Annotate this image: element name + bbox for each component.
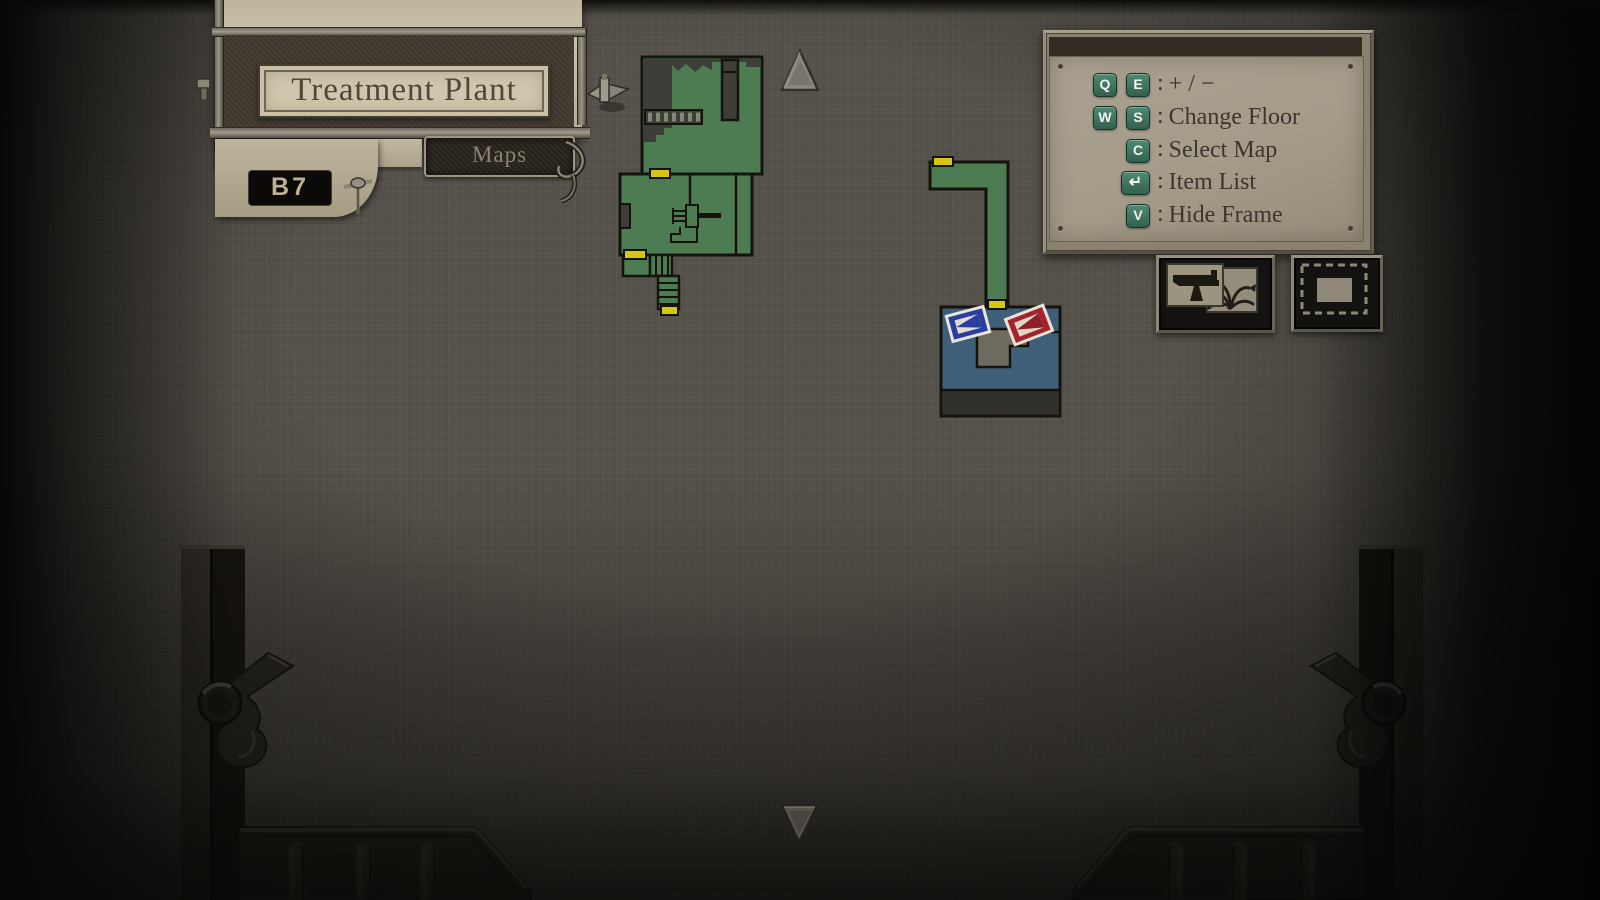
legend-separator: : xyxy=(1157,70,1164,97)
map-frame-toggle[interactable] xyxy=(1291,255,1383,332)
legend-row-zoom: QE : + / − xyxy=(1058,71,1358,98)
frame-icon xyxy=(1302,265,1366,313)
legend-action-zoom: + / − xyxy=(1169,71,1215,98)
legend-separator: : xyxy=(1157,103,1164,130)
key-enter: ↵ xyxy=(1121,171,1150,195)
legend-separator: : xyxy=(1157,168,1164,195)
stairwell-down xyxy=(658,276,679,309)
legend-action-change-floor: Change Floor xyxy=(1169,104,1300,131)
door-marker xyxy=(988,300,1006,309)
staircase xyxy=(645,110,702,124)
legend-row-item-list: ↵ : Item List xyxy=(1058,169,1358,196)
key-w: W xyxy=(1093,106,1117,130)
map-screen: Treatment Plant B7 Maps xyxy=(0,0,1600,900)
floor-down-arrow[interactable] xyxy=(782,806,817,842)
legend-separator: : xyxy=(1157,136,1164,163)
legend-row-change-floor: WS : Change Floor xyxy=(1058,104,1358,131)
map-canvas[interactable] xyxy=(620,57,1060,416)
legend-separator: : xyxy=(1157,201,1164,228)
door-marker xyxy=(661,306,678,315)
maps-tab-hook xyxy=(558,142,582,201)
map-sector-east xyxy=(930,157,1060,416)
legend-action-item-list: Item List xyxy=(1169,169,1256,196)
shaft xyxy=(722,60,738,120)
screw-icon xyxy=(1058,64,1063,69)
floor-up-arrow[interactable] xyxy=(782,51,818,90)
legend-action-select-map: Select Map xyxy=(1169,137,1278,164)
wing-nut-clip xyxy=(588,74,628,112)
door-marker xyxy=(650,169,670,178)
screw-icon xyxy=(1348,64,1353,69)
handgun-icon xyxy=(1167,264,1223,306)
key-q: Q xyxy=(1093,73,1117,97)
sign-bracket-left xyxy=(197,79,210,100)
push-pin xyxy=(344,178,372,214)
legend-row-hide-frame: V : Hide Frame xyxy=(1058,202,1358,229)
legend-action-hide-frame: Hide Frame xyxy=(1169,202,1283,229)
legend-row-select-map: C : Select Map xyxy=(1058,137,1358,164)
door-marker xyxy=(933,157,953,166)
key-e: E xyxy=(1126,73,1150,97)
map-sector-west xyxy=(620,57,762,315)
key-c: C xyxy=(1126,139,1150,163)
alcove xyxy=(620,204,630,228)
legend-top-band xyxy=(1049,37,1362,56)
equipment-items-toggle[interactable] xyxy=(1156,255,1275,333)
key-v: V xyxy=(1126,204,1150,228)
door-marker xyxy=(624,250,646,259)
key-s: S xyxy=(1126,106,1150,130)
corridor xyxy=(930,162,1008,305)
ladder xyxy=(650,255,672,276)
